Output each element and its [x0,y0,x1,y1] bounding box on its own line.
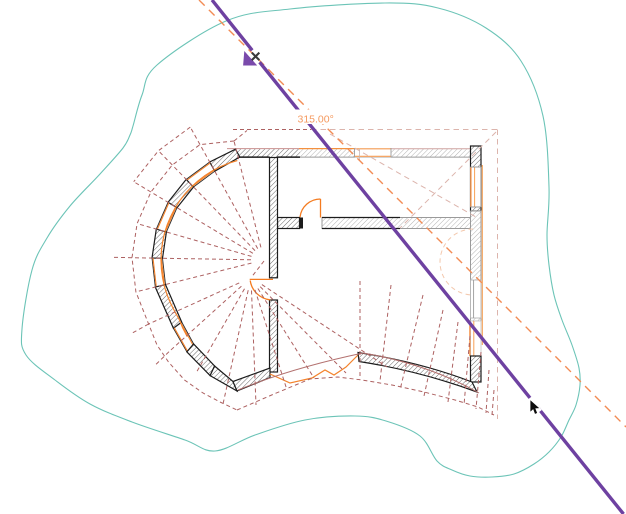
svg-text:315.00°: 315.00° [298,113,334,125]
